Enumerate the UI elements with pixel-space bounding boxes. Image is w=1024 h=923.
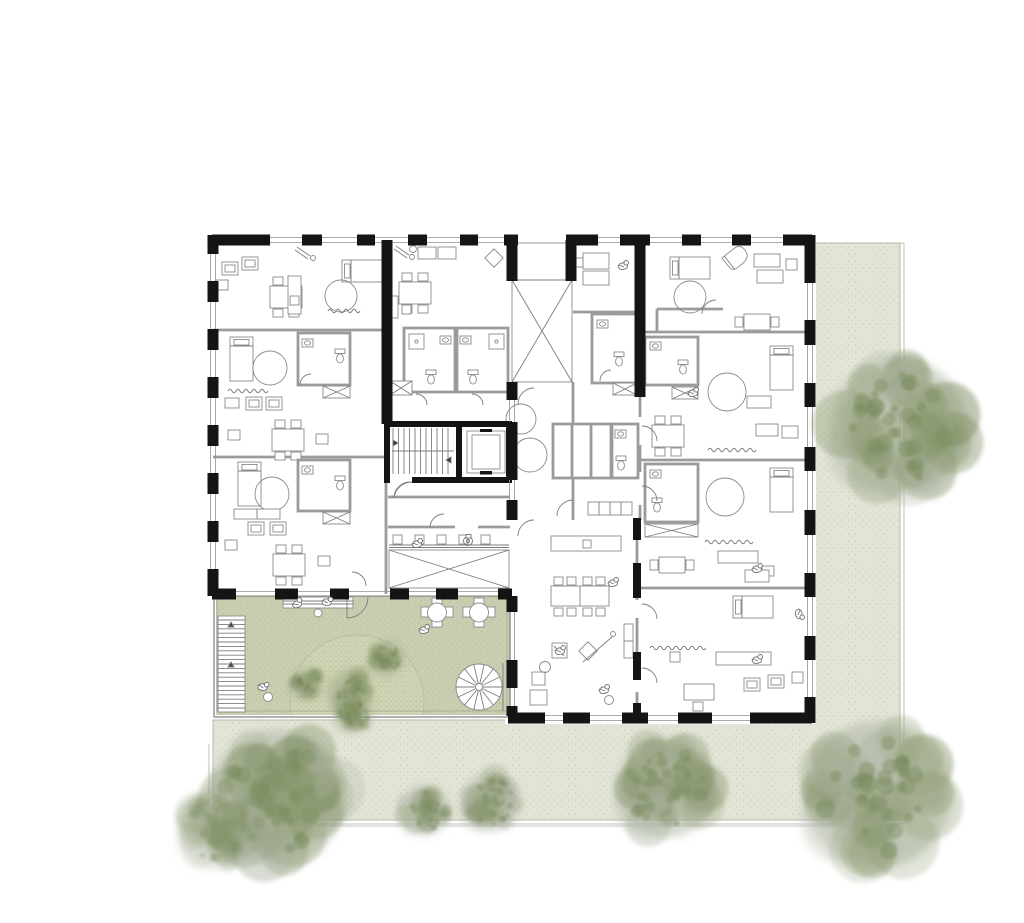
tree	[798, 715, 963, 883]
site-plan-drawing	[0, 0, 1024, 923]
exterior-stair	[218, 616, 245, 712]
tree	[367, 641, 404, 675]
floor-plan-canvas	[0, 0, 1024, 923]
staircase	[390, 427, 456, 477]
elevator	[462, 427, 506, 477]
